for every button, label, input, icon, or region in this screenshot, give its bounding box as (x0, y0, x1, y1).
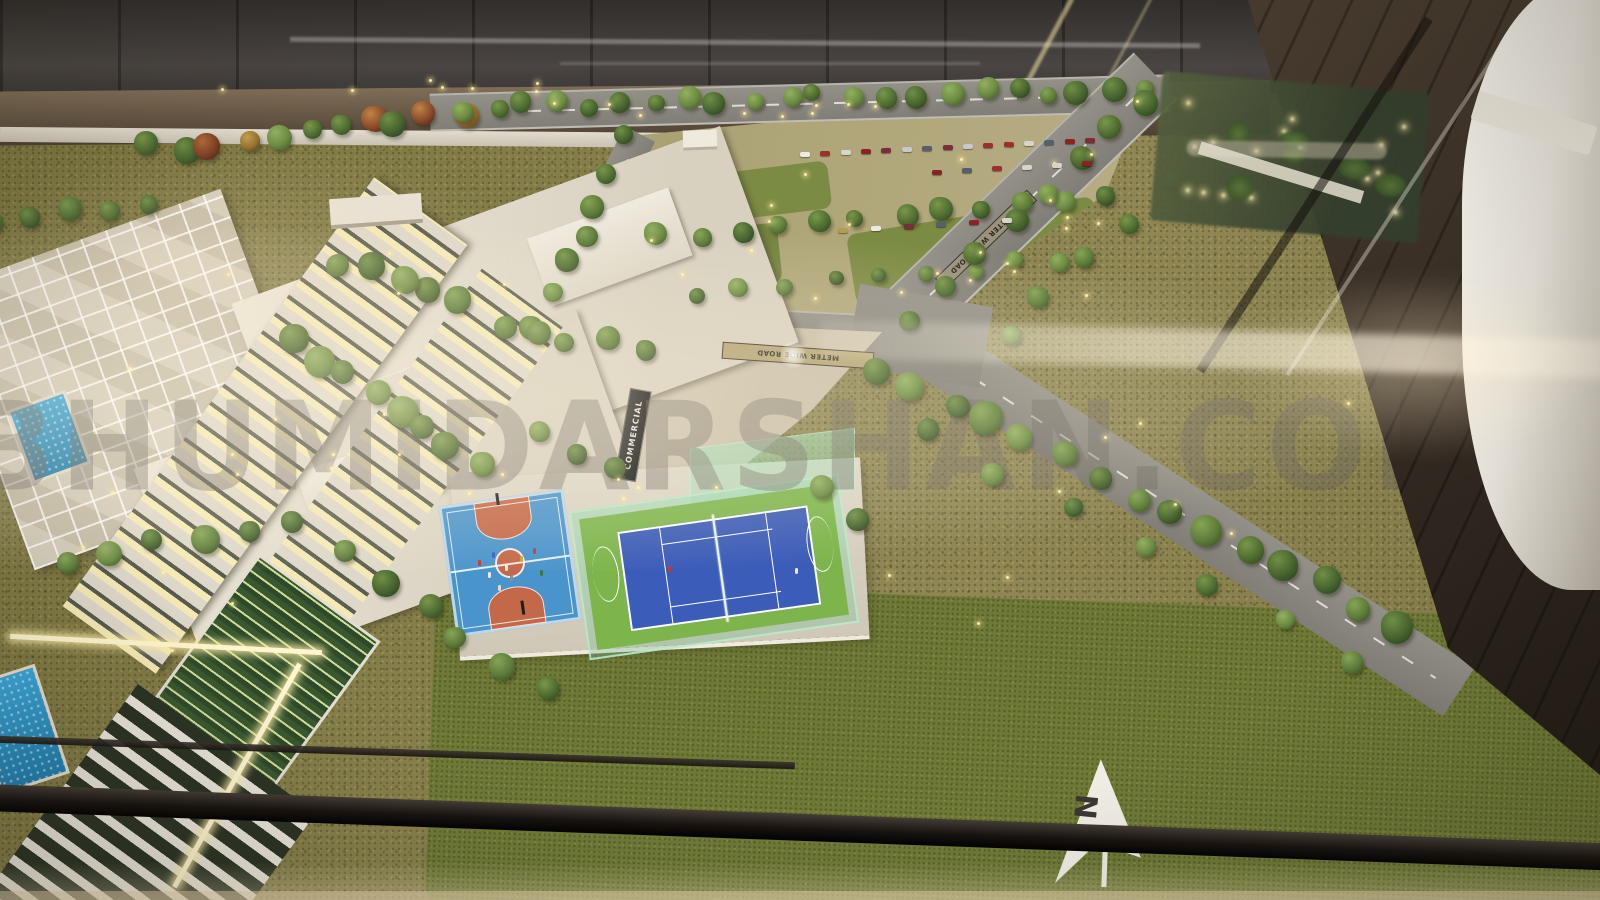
parked-car (1044, 140, 1054, 145)
light-dot (969, 279, 972, 282)
parked-car (838, 228, 848, 233)
parked-car (1024, 141, 1034, 146)
parked-car (902, 147, 912, 152)
tree (747, 93, 764, 110)
tree (1097, 115, 1121, 139)
figure (540, 570, 543, 576)
tree (968, 264, 984, 280)
tree (871, 268, 885, 282)
light-dot (960, 158, 963, 161)
light-dot (814, 297, 817, 300)
light-dot (1065, 227, 1068, 230)
tree (776, 279, 793, 296)
tree (1096, 186, 1115, 205)
tree (1089, 467, 1112, 490)
parked-car (969, 220, 979, 225)
figure (505, 565, 508, 571)
tree (769, 216, 787, 234)
tree (609, 92, 630, 113)
tree (1040, 87, 1057, 104)
reflection-light (1290, 117, 1294, 121)
parked-car (1004, 142, 1014, 147)
tree (905, 86, 927, 108)
tree (366, 380, 391, 405)
tree (1346, 597, 1370, 621)
tree (935, 276, 956, 297)
tree (702, 92, 725, 115)
tree (239, 521, 260, 542)
parked-car (861, 149, 871, 154)
tree (1276, 610, 1295, 629)
light-dot (622, 497, 625, 500)
tree (1102, 77, 1127, 102)
parked-car (1002, 218, 1012, 223)
north-arrow-letter: N (1069, 793, 1106, 822)
parked-car (1085, 138, 1095, 143)
light-dot (900, 291, 903, 294)
light-dot (936, 272, 939, 275)
tree (596, 164, 616, 184)
model-photo: COMMERCIAL 30 METER WIDE ROAD METER WIDE… (0, 0, 1600, 900)
light-dot (681, 273, 684, 276)
parked-car (1065, 139, 1075, 144)
light-dot (770, 204, 773, 207)
tree (1237, 536, 1264, 563)
parked-car (904, 224, 914, 229)
light-dot (82, 546, 85, 549)
light-dot (639, 114, 642, 117)
light-dot (1006, 576, 1009, 579)
light-dot (715, 486, 718, 489)
tree (1196, 574, 1218, 596)
tree (1128, 489, 1151, 512)
tree (555, 248, 579, 272)
tree (334, 540, 356, 562)
parked-car (1022, 164, 1032, 169)
north-arrow-icon: N (1044, 753, 1145, 887)
tree (946, 395, 970, 419)
tree (527, 321, 551, 345)
light-dot (637, 486, 640, 489)
parked-car (841, 150, 851, 155)
light-dot (231, 453, 234, 456)
light-dot (383, 413, 386, 416)
reflection-light (1186, 101, 1190, 105)
light-dot (1085, 294, 1088, 297)
light-dot (162, 571, 165, 574)
tree (929, 197, 953, 221)
tree (648, 95, 664, 111)
tree (810, 475, 834, 499)
light-dot (1097, 222, 1100, 225)
tree (1038, 184, 1058, 204)
tree (1190, 515, 1222, 547)
light-dot (1058, 490, 1061, 493)
tree (829, 271, 843, 285)
tree (803, 84, 820, 101)
tree (895, 372, 924, 401)
tree (580, 99, 598, 117)
figure (498, 585, 501, 591)
light-dot (977, 622, 980, 625)
tree (1063, 81, 1088, 106)
tree (331, 360, 355, 384)
tree (410, 415, 434, 439)
tree (431, 432, 459, 460)
light-dot (1139, 422, 1142, 425)
reflection-light (1365, 177, 1369, 181)
tree (604, 457, 626, 479)
tree (977, 77, 999, 99)
tree (303, 120, 322, 139)
tree (510, 91, 531, 112)
tree (1052, 441, 1078, 467)
figure (510, 575, 513, 581)
light-dot (536, 82, 539, 85)
glass-glare-right (1230, 270, 1600, 460)
tree (963, 242, 986, 265)
tree (1006, 251, 1024, 269)
light-dot (429, 79, 432, 82)
tree (783, 87, 803, 107)
tree (1136, 537, 1156, 557)
tree (728, 278, 747, 297)
tree (491, 100, 509, 118)
light-dot (441, 86, 444, 89)
tree (733, 222, 754, 243)
tree (1074, 247, 1094, 267)
light-dot (1230, 532, 1233, 535)
tree (644, 222, 667, 245)
figure (488, 572, 491, 578)
light-dot (768, 220, 771, 223)
tree (846, 508, 869, 531)
tree (808, 210, 831, 233)
light-dot (1013, 270, 1016, 273)
tree (1157, 500, 1182, 525)
light-dot (231, 602, 234, 605)
light-dot (468, 492, 471, 495)
tree (489, 653, 516, 680)
tree (863, 358, 890, 385)
light-dot (781, 115, 784, 118)
tree (918, 266, 934, 282)
tree (576, 226, 598, 248)
tree (1010, 78, 1030, 98)
tree (546, 90, 568, 112)
parked-car (800, 152, 810, 157)
tree (567, 444, 587, 464)
light-dot (1174, 503, 1177, 506)
tree (543, 283, 563, 303)
figure (668, 566, 671, 572)
tree (529, 421, 550, 442)
parked-car (963, 144, 973, 149)
light-dot (979, 251, 982, 254)
light-dot (743, 112, 746, 115)
tree (1050, 253, 1069, 272)
light-dot (398, 453, 401, 456)
light-dot (750, 249, 753, 252)
tree (419, 594, 443, 618)
tree (969, 401, 1003, 435)
light-dot (471, 87, 474, 90)
tree (537, 677, 560, 700)
tree (96, 541, 121, 566)
parked-car (962, 168, 972, 173)
tree (1119, 214, 1139, 234)
parked-car (983, 143, 993, 148)
parked-car (820, 151, 830, 156)
reflection-light (1185, 188, 1189, 192)
light-dot (129, 367, 132, 370)
light-dot (535, 90, 538, 93)
reflection-light (1202, 191, 1206, 195)
light-dot (553, 102, 556, 105)
tree (1341, 651, 1364, 674)
light-dot (274, 418, 277, 421)
light-dot (815, 104, 818, 107)
tree (554, 333, 573, 352)
light-dot (236, 473, 239, 476)
light-dot (874, 105, 877, 108)
tree (1006, 424, 1032, 450)
tree (1064, 498, 1083, 517)
tree (693, 228, 712, 247)
parked-car (936, 222, 946, 227)
light-dot (888, 574, 891, 577)
tree (444, 627, 465, 648)
reflection-light (1402, 125, 1406, 129)
light-dot (111, 491, 114, 494)
tree (876, 87, 898, 109)
parked-car (871, 226, 881, 231)
tree (452, 102, 472, 122)
light-dot (332, 453, 335, 456)
tree (580, 195, 604, 219)
parked-car (942, 145, 952, 150)
tree (57, 552, 79, 574)
light-dot (221, 88, 224, 91)
reflection-light (1221, 194, 1225, 198)
parked-car (1052, 163, 1062, 168)
tree (331, 115, 351, 135)
figure (795, 568, 798, 574)
light-dot (330, 467, 333, 470)
figure (520, 556, 523, 562)
tree (281, 511, 303, 533)
tree (689, 288, 705, 304)
parked-car (932, 170, 942, 175)
tree (191, 525, 221, 555)
tree (972, 201, 989, 218)
tree (141, 529, 162, 550)
light-dot (811, 112, 814, 115)
light-dot (1066, 216, 1069, 219)
light-dot (650, 239, 653, 242)
reflection-light (1375, 171, 1379, 175)
tree (470, 452, 495, 477)
figure (533, 548, 536, 554)
parked-car (881, 148, 891, 153)
light-dot (171, 649, 174, 652)
tree (372, 570, 399, 597)
figure (478, 560, 481, 566)
tree (981, 463, 1003, 485)
tree (917, 418, 939, 440)
light-dot (1006, 262, 1009, 265)
parked-car (1082, 161, 1092, 166)
figure (492, 552, 495, 558)
tree (411, 101, 435, 125)
tree (596, 326, 620, 350)
parked-car (922, 146, 932, 151)
light-dot (1104, 436, 1107, 439)
tree (1313, 566, 1340, 593)
bottom-table-strip (0, 891, 1600, 900)
tree (636, 340, 657, 361)
tree (941, 82, 965, 106)
tree (1027, 286, 1049, 308)
light-dot (617, 478, 620, 481)
parked-car (992, 166, 1002, 171)
tree (379, 111, 405, 137)
light-dot (804, 173, 807, 176)
tree (1267, 550, 1298, 581)
tree (614, 125, 633, 144)
glass-haze (0, 140, 520, 360)
light-dot (351, 89, 354, 92)
tree (1381, 611, 1414, 644)
light-dot (501, 473, 504, 476)
tree (678, 86, 700, 108)
